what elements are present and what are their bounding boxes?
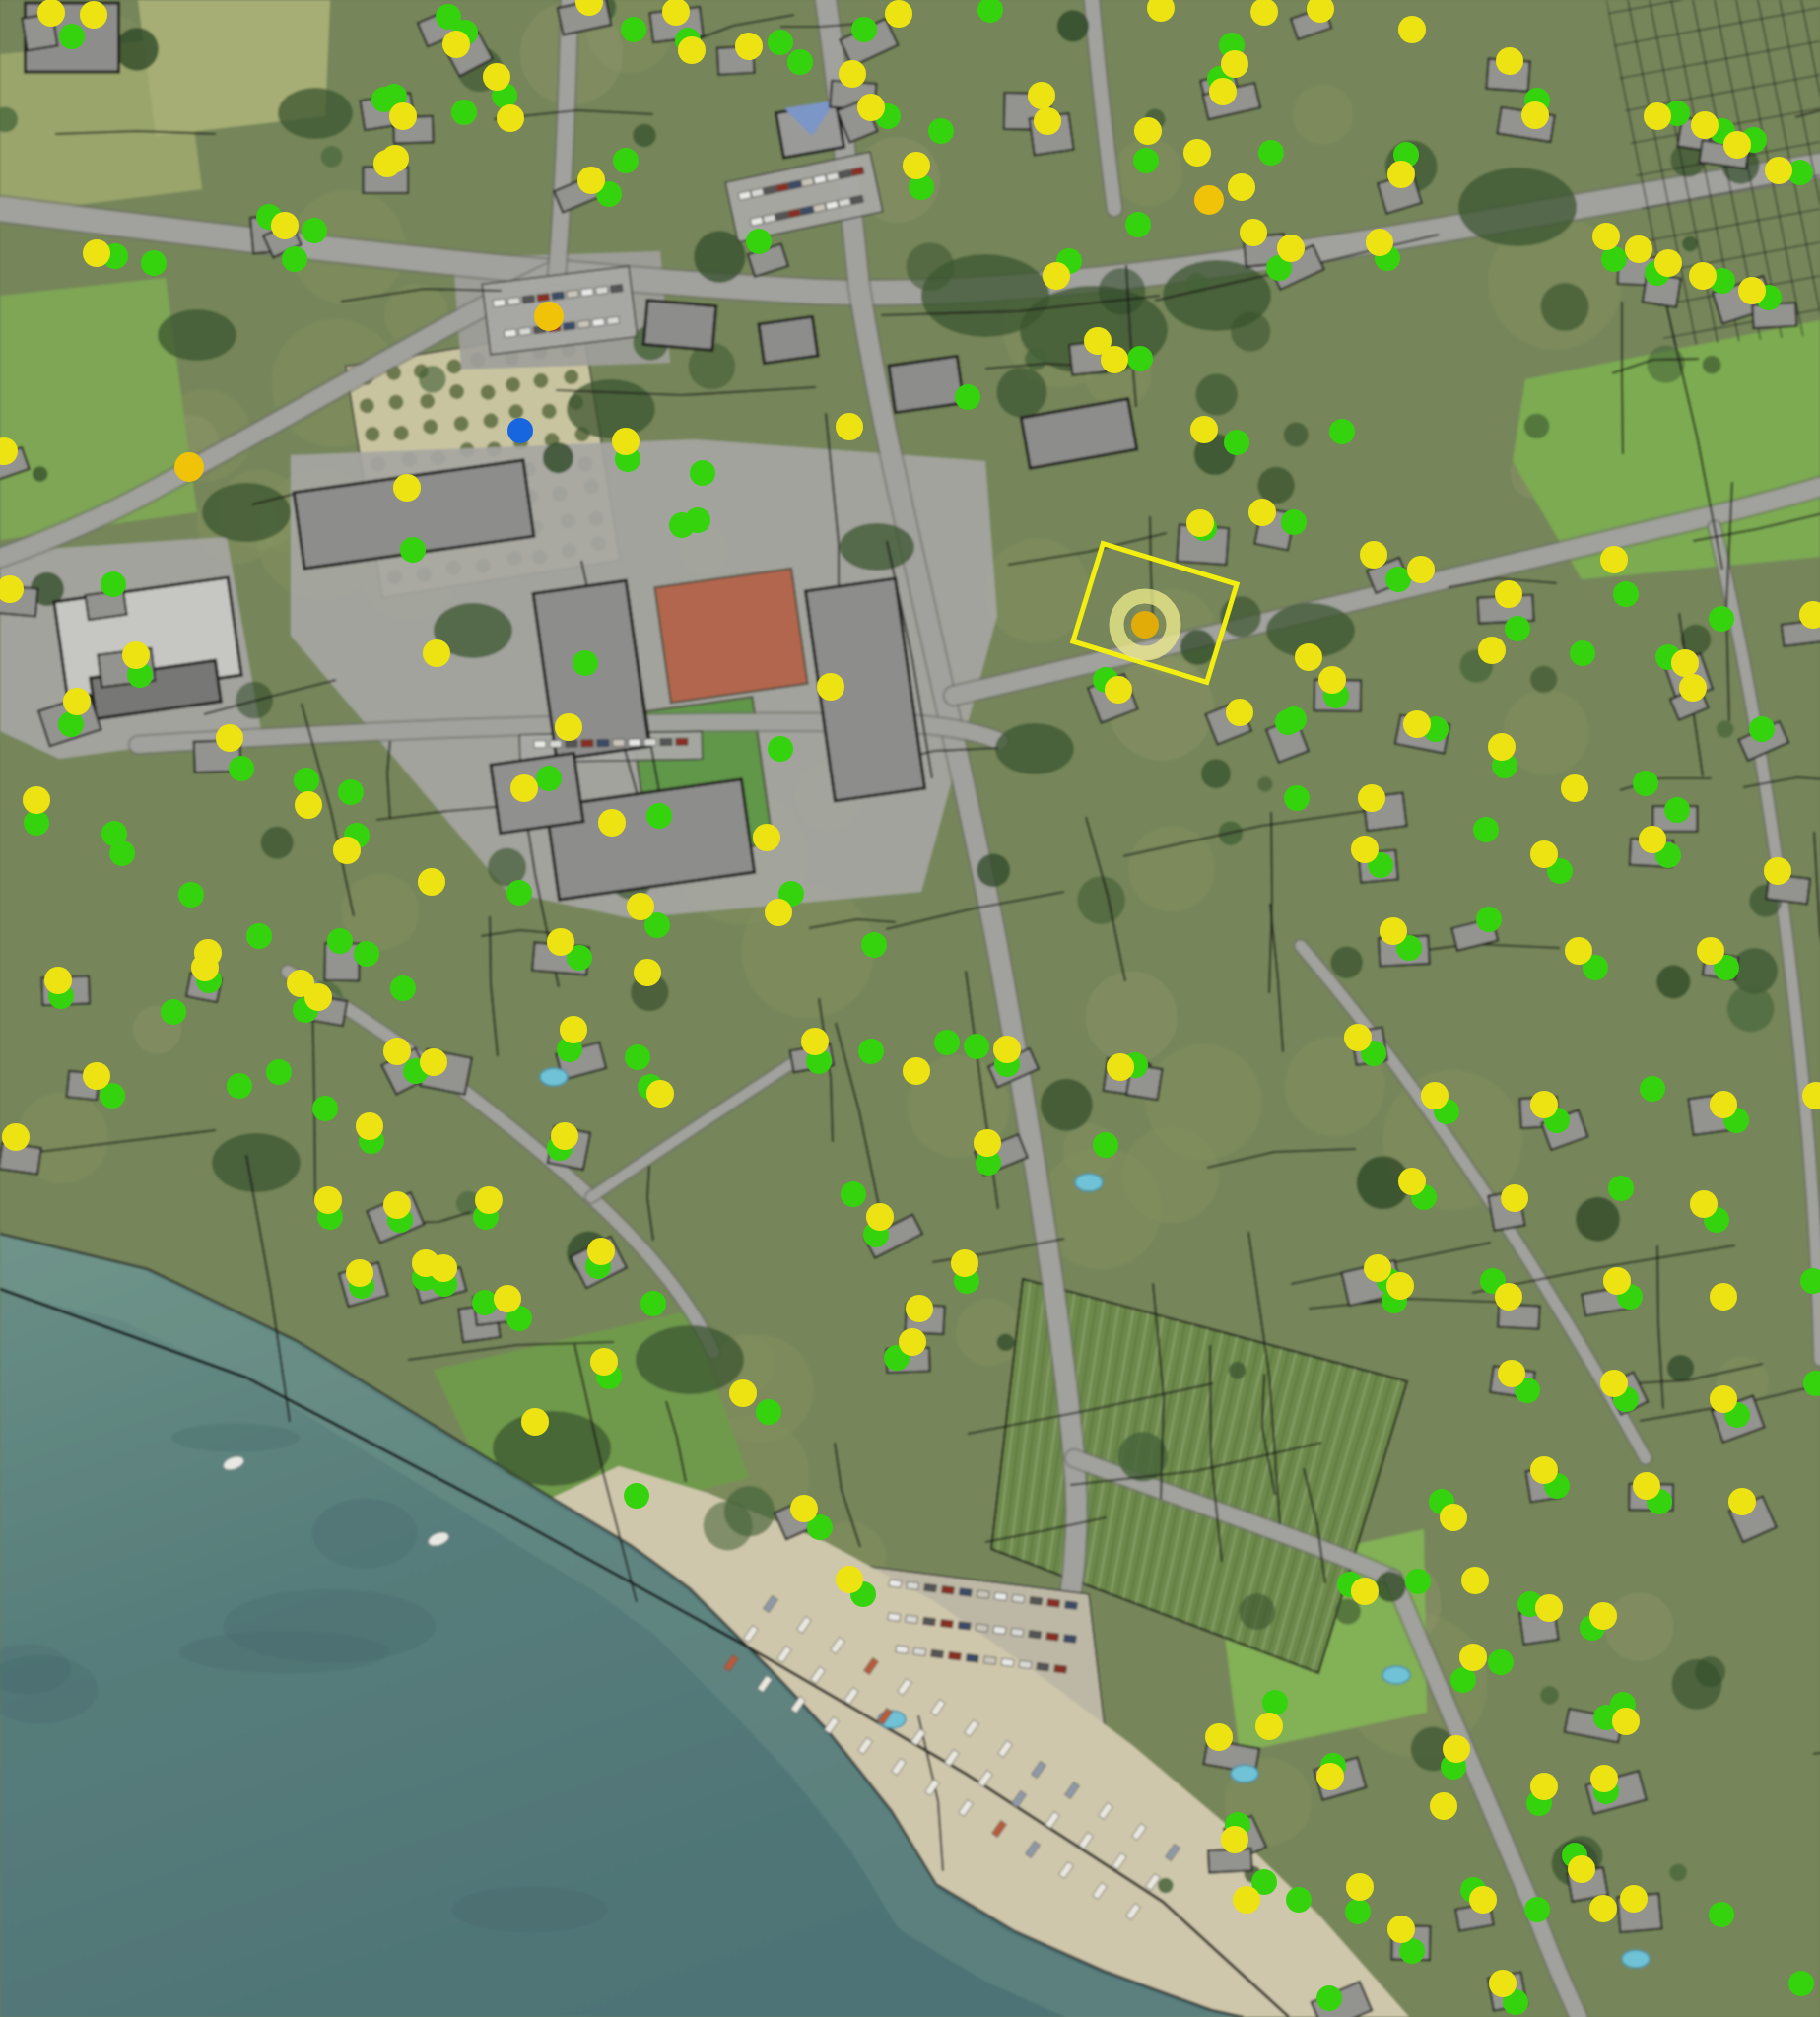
marker-yellow[interactable] (1421, 1082, 1449, 1109)
marker-green[interactable] (354, 941, 379, 967)
marker-yellow[interactable] (1600, 1370, 1628, 1397)
marker-yellow[interactable] (63, 688, 91, 715)
marker-yellow[interactable] (1255, 1713, 1283, 1740)
marker-yellow[interactable] (1440, 1504, 1467, 1531)
marker-green[interactable] (58, 711, 84, 737)
building (759, 316, 818, 363)
marker-yellow[interactable] (587, 1238, 615, 1265)
marker-yellow[interactable] (1205, 1723, 1233, 1751)
marker-yellow[interactable] (1728, 1488, 1756, 1515)
marker-yellow[interactable] (1386, 1272, 1414, 1300)
marker-green[interactable] (573, 650, 598, 676)
marker-yellow[interactable] (1710, 1091, 1737, 1118)
marker-yellow[interactable] (1489, 1970, 1517, 1997)
marker-green[interactable] (1281, 509, 1307, 535)
marker-green[interactable] (59, 24, 85, 49)
marker-yellow[interactable] (80, 1, 107, 29)
marker-green[interactable] (1524, 1897, 1550, 1922)
marker-yellow[interactable] (974, 1129, 1001, 1157)
marker-green[interactable] (227, 1073, 252, 1099)
marker-yellow[interactable] (839, 60, 866, 88)
marker-yellow[interactable] (497, 104, 524, 132)
meadow-field (0, 278, 197, 540)
marker-green[interactable] (1224, 430, 1249, 455)
marker-yellow[interactable] (1387, 1916, 1415, 1943)
marker-green[interactable] (294, 768, 319, 793)
marker-yellow[interactable] (423, 639, 450, 667)
marker-yellow[interactable] (634, 959, 661, 986)
marker-yellow[interactable] (1625, 235, 1652, 263)
marker-yellow[interactable] (1612, 1708, 1640, 1735)
building (889, 356, 964, 412)
marker-yellow[interactable] (304, 983, 332, 1011)
marker-yellow[interactable] (836, 1566, 863, 1593)
marker-yellow[interactable] (899, 1328, 926, 1356)
marker-yellow[interactable] (122, 641, 150, 669)
marker-yellow[interactable] (271, 212, 299, 239)
marker-yellow[interactable] (1697, 937, 1724, 965)
marker-yellow[interactable] (1233, 1886, 1260, 1914)
marker-yellow[interactable] (44, 967, 72, 994)
marker-yellow[interactable] (547, 928, 574, 956)
marker-yellow[interactable] (1318, 666, 1346, 694)
marker-green[interactable] (312, 1096, 338, 1121)
marker-yellow[interactable] (383, 1191, 411, 1219)
marker-yellow[interactable] (1028, 82, 1055, 109)
marker-yellow[interactable] (1398, 1168, 1426, 1195)
marker-yellow[interactable] (1496, 47, 1523, 75)
marker-yellow[interactable] (393, 474, 421, 502)
marker-yellow[interactable] (1738, 277, 1766, 304)
marker-yellow[interactable] (23, 786, 50, 814)
marker-yellow[interactable] (678, 36, 706, 64)
marker-gold[interactable] (1194, 185, 1224, 215)
marker-green[interactable] (1709, 1902, 1734, 1927)
marker-yellow[interactable] (1561, 774, 1588, 802)
marker-green[interactable] (282, 246, 307, 272)
tree-cluster (158, 309, 236, 361)
marker-yellow[interactable] (1521, 101, 1549, 129)
marker-yellow[interactable] (1495, 1283, 1522, 1311)
marker-yellow[interactable] (1221, 1826, 1248, 1853)
marker-yellow[interactable] (1764, 857, 1791, 885)
marker-yellow[interactable] (1034, 107, 1061, 135)
marker-green[interactable] (640, 1291, 666, 1316)
marker-yellow[interactable] (389, 102, 417, 130)
marker-yellow[interactable] (790, 1495, 818, 1522)
marker-green[interactable] (625, 1044, 650, 1070)
marker-yellow[interactable] (1565, 937, 1592, 965)
marker-yellow[interactable] (1186, 509, 1214, 537)
marker-yellow[interactable] (1358, 784, 1385, 812)
marker-green[interactable] (1258, 140, 1284, 166)
marker-yellow[interactable] (555, 713, 582, 741)
marker-yellow[interactable] (521, 1408, 549, 1436)
marker-yellow[interactable] (1689, 262, 1717, 290)
marker-yellow[interactable] (333, 837, 361, 864)
marker-yellow[interactable] (1226, 699, 1253, 726)
marker-yellow[interactable] (1398, 16, 1426, 43)
marker-yellow[interactable] (1679, 674, 1707, 702)
marker-yellow[interactable] (418, 868, 445, 896)
marker-green[interactable] (1613, 581, 1639, 607)
tree-cluster (202, 483, 291, 542)
sports-court (654, 569, 807, 703)
marker-yellow[interactable] (83, 239, 110, 267)
marker-green[interactable] (1788, 1971, 1814, 1996)
marker-yellow[interactable] (1380, 917, 1407, 945)
marker-yellow[interactable] (1530, 1773, 1558, 1800)
marker-yellow[interactable] (1765, 157, 1792, 184)
marker-yellow[interactable] (1366, 229, 1393, 256)
marker-yellow[interactable] (1351, 836, 1379, 863)
marker-yellow[interactable] (1639, 826, 1666, 853)
marker-yellow[interactable] (1710, 1283, 1737, 1311)
swimming-pool (1382, 1666, 1410, 1684)
marker-green[interactable] (858, 1039, 884, 1064)
marker-green[interactable] (841, 1181, 866, 1207)
marker-yellow[interactable] (903, 152, 930, 179)
marker-green[interactable] (266, 1059, 292, 1085)
marker-yellow[interactable] (483, 63, 510, 91)
marker-yellow[interactable] (37, 0, 65, 27)
marker-yellow[interactable] (1495, 580, 1522, 608)
marker-yellow[interactable] (735, 33, 763, 60)
marker-green[interactable] (246, 923, 272, 949)
marker-green[interactable] (1093, 1132, 1118, 1158)
marker-yellow[interactable] (475, 1186, 503, 1214)
marker-yellow[interactable] (1589, 1602, 1617, 1630)
marker-green[interactable] (1329, 419, 1355, 444)
marker-green[interactable] (1405, 1569, 1431, 1594)
marker-yellow[interactable] (1105, 676, 1132, 704)
marker-green[interactable] (161, 999, 186, 1025)
marker-green[interactable] (178, 882, 204, 908)
marker-yellow[interactable] (1364, 1254, 1391, 1282)
marker-yellow[interactable] (1633, 1472, 1660, 1500)
swimming-pool (1075, 1174, 1103, 1191)
marker-yellow[interactable] (1530, 840, 1558, 868)
marker-green[interactable] (621, 17, 646, 42)
marker-blue[interactable] (507, 418, 533, 443)
marker-green[interactable] (955, 384, 980, 410)
marker-green[interactable] (964, 1034, 989, 1059)
marker-yellow[interactable] (1592, 223, 1620, 250)
marker-yellow[interactable] (1469, 1886, 1497, 1914)
marker-yellow[interactable] (1240, 219, 1267, 246)
marker-green[interactable] (690, 460, 715, 486)
parcel-boundary (1622, 302, 1623, 454)
map-viewport[interactable] (0, 0, 1820, 2017)
marker-yellow[interactable] (1671, 649, 1699, 677)
marker-yellow[interactable] (866, 1203, 894, 1231)
marker-yellow[interactable] (1530, 1091, 1558, 1118)
marker-yellow[interactable] (1530, 1456, 1558, 1484)
marker-green[interactable] (327, 928, 353, 954)
marker-green[interactable] (1473, 817, 1499, 842)
marker-yellow[interactable] (1295, 643, 1322, 671)
marker-yellow[interactable] (1600, 546, 1628, 573)
marker-yellow[interactable] (729, 1379, 757, 1407)
marker-green[interactable] (1284, 785, 1310, 811)
marker-yellow[interactable] (381, 145, 409, 172)
marker-green[interactable] (756, 1399, 781, 1425)
marker-yellow[interactable] (430, 1254, 457, 1282)
marker-yellow[interactable] (765, 899, 792, 926)
marker-yellow[interactable] (801, 1028, 829, 1055)
swimming-pool (1231, 1765, 1258, 1782)
marker-yellow[interactable] (951, 1249, 978, 1277)
marker-green[interactable] (1476, 907, 1502, 932)
marker-yellow[interactable] (1221, 50, 1248, 78)
marker-green[interactable] (1262, 1690, 1288, 1715)
marker-yellow[interactable] (1459, 1644, 1487, 1671)
marker-yellow[interactable] (906, 1295, 933, 1322)
aerial-map-canvas[interactable] (0, 0, 1820, 2017)
marker-yellow[interactable] (577, 167, 605, 194)
marker-green[interactable] (1633, 771, 1658, 796)
marker-yellow[interactable] (420, 1048, 447, 1076)
marker-green[interactable] (1488, 1649, 1514, 1675)
marker-green[interactable] (768, 736, 793, 762)
marker-yellow[interactable] (1690, 1190, 1718, 1218)
tree-cluster (567, 379, 655, 438)
marker-green[interactable] (1664, 797, 1690, 823)
marker-yellow[interactable] (1248, 499, 1276, 526)
marker-yellow[interactable] (753, 824, 780, 851)
marker-green[interactable] (1608, 1176, 1634, 1201)
tree-cluster (840, 523, 914, 571)
marker-yellow[interactable] (857, 94, 885, 121)
marker-green[interactable] (1316, 1985, 1342, 2011)
tree-cluster (1458, 168, 1577, 246)
marker-green[interactable] (101, 571, 126, 597)
marker-yellow[interactable] (356, 1112, 383, 1140)
marker-yellow[interactable] (1478, 637, 1506, 664)
marker-yellow[interactable] (1723, 131, 1751, 159)
marker-green[interactable] (861, 932, 887, 958)
marker-green[interactable] (613, 148, 639, 173)
marker-yellow[interactable] (2, 1123, 30, 1151)
marker-yellow[interactable] (1351, 1578, 1379, 1605)
marker-green[interactable] (1709, 606, 1734, 632)
marker-yellow[interactable] (1620, 1885, 1648, 1913)
tree-cluster (212, 1133, 301, 1192)
marker-yellow[interactable] (1603, 1267, 1631, 1295)
marker-yellow[interactable] (560, 1016, 587, 1043)
marker-yellow[interactable] (1654, 249, 1682, 277)
marker-gold[interactable] (174, 452, 204, 482)
marker-yellow[interactable] (1344, 1024, 1372, 1051)
marker-green[interactable] (141, 250, 167, 276)
marker-yellow[interactable] (1387, 161, 1415, 188)
tree-cluster (636, 1325, 744, 1394)
building (643, 301, 716, 351)
tree-cluster (278, 88, 353, 139)
tree-cluster (995, 723, 1074, 774)
marker-yellow[interactable] (903, 1057, 930, 1085)
marker-yellow[interactable] (1590, 1765, 1618, 1792)
marker-yellow[interactable] (1043, 262, 1070, 290)
marker-green[interactable] (338, 779, 364, 805)
marker-yellow[interactable] (1101, 346, 1128, 373)
marker-green[interactable] (787, 49, 813, 75)
marker-green[interactable] (1505, 616, 1530, 641)
marker-green[interactable] (1127, 346, 1153, 371)
marker-selected[interactable] (1131, 611, 1159, 639)
marker-yellow[interactable] (346, 1259, 373, 1287)
marker-yellow[interactable] (314, 1186, 342, 1214)
marker-yellow[interactable] (885, 0, 912, 28)
marker-green[interactable] (934, 1030, 960, 1055)
swimming-pool (540, 1068, 568, 1086)
marker-yellow[interactable] (191, 954, 219, 981)
tree-cluster (493, 1411, 611, 1486)
marker-yellow[interactable] (1209, 78, 1237, 105)
marker-yellow[interactable] (1407, 556, 1435, 583)
marker-yellow[interactable] (1568, 1855, 1595, 1883)
marker-yellow[interactable] (590, 1348, 618, 1376)
marker-yellow[interactable] (993, 1036, 1021, 1063)
marker-green[interactable] (1281, 706, 1307, 732)
marker-yellow[interactable] (295, 791, 322, 819)
marker-green[interactable] (768, 30, 793, 55)
marker-yellow[interactable] (1589, 1895, 1617, 1922)
marker-green[interactable] (685, 507, 710, 533)
marker-yellow[interactable] (1316, 1763, 1344, 1790)
marker-yellow[interactable] (1360, 541, 1387, 569)
marker-yellow[interactable] (1498, 1360, 1525, 1387)
marker-yellow[interactable] (646, 1080, 674, 1108)
marker-gold[interactable] (534, 302, 564, 331)
marker-green[interactable] (302, 218, 327, 243)
marker-green[interactable] (1125, 212, 1151, 237)
marker-yellow[interactable] (1710, 1385, 1737, 1413)
marker-green[interactable] (1640, 1076, 1665, 1102)
marker-yellow[interactable] (494, 1285, 521, 1312)
marker-green[interactable] (851, 17, 877, 42)
marker-yellow[interactable] (612, 428, 640, 455)
marker-yellow[interactable] (510, 774, 538, 802)
marker-green[interactable] (1570, 640, 1595, 666)
marker-yellow[interactable] (1277, 235, 1305, 262)
swimming-pool (1622, 1950, 1650, 1968)
marker-yellow[interactable] (1183, 139, 1211, 167)
marker-yellow[interactable] (1488, 733, 1516, 761)
marker-green[interactable] (646, 803, 672, 829)
marker-green[interactable] (1133, 148, 1159, 173)
marker-green[interactable] (229, 756, 254, 781)
marker-yellow[interactable] (598, 809, 626, 837)
basemap-imagery (0, 0, 1820, 2017)
marker-green[interactable] (506, 880, 532, 906)
marker-green[interactable] (451, 100, 477, 125)
marker-yellow[interactable] (817, 673, 844, 701)
marker-green[interactable] (1286, 1887, 1312, 1913)
marker-green[interactable] (536, 766, 562, 791)
marker-green[interactable] (109, 840, 135, 866)
marker-yellow[interactable] (1228, 173, 1255, 201)
marker-green[interactable] (624, 1483, 649, 1509)
marker-green[interactable] (746, 229, 772, 254)
marker-green[interactable] (400, 537, 426, 563)
marker-yellow[interactable] (1461, 1567, 1489, 1594)
marker-yellow[interactable] (1644, 102, 1671, 130)
marker-yellow[interactable] (1501, 1184, 1528, 1212)
marker-yellow[interactable] (1535, 1594, 1563, 1622)
marker-yellow[interactable] (383, 1038, 411, 1065)
marker-green[interactable] (1749, 716, 1775, 742)
marker-green[interactable] (472, 1290, 498, 1315)
marker-yellow[interactable] (836, 413, 863, 440)
marker-yellow[interactable] (216, 724, 243, 752)
marker-yellow[interactable] (627, 893, 654, 920)
marker-yellow[interactable] (1443, 1735, 1470, 1763)
marker-yellow[interactable] (551, 1122, 578, 1150)
marker-green[interactable] (390, 975, 416, 1001)
marker-yellow[interactable] (1134, 117, 1162, 145)
marker-yellow[interactable] (1403, 710, 1431, 738)
marker-yellow[interactable] (1346, 1873, 1374, 1901)
marker-green[interactable] (928, 118, 954, 144)
marker-yellow[interactable] (1691, 111, 1719, 139)
marker-yellow[interactable] (1107, 1053, 1134, 1081)
marker-yellow[interactable] (442, 31, 470, 58)
marker-yellow[interactable] (83, 1062, 110, 1090)
marker-yellow[interactable] (1190, 416, 1218, 443)
marker-green[interactable] (1345, 1899, 1371, 1924)
marker-yellow[interactable] (1430, 1792, 1457, 1820)
